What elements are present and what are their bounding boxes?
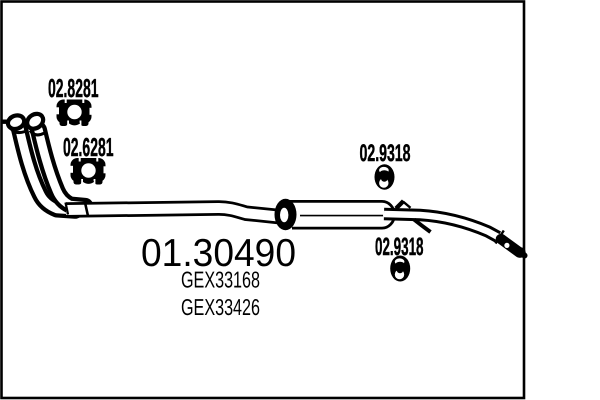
- svg-text:02.9318: 02.9318: [360, 140, 411, 167]
- svg-text:02.9318: 02.9318: [375, 233, 424, 261]
- svg-text:02.6281: 02.6281: [63, 132, 114, 162]
- svg-text:02.8281: 02.8281: [48, 73, 99, 103]
- svg-text:GEX33426: GEX33426: [181, 294, 260, 320]
- svg-text:GEX33168: GEX33168: [181, 267, 260, 293]
